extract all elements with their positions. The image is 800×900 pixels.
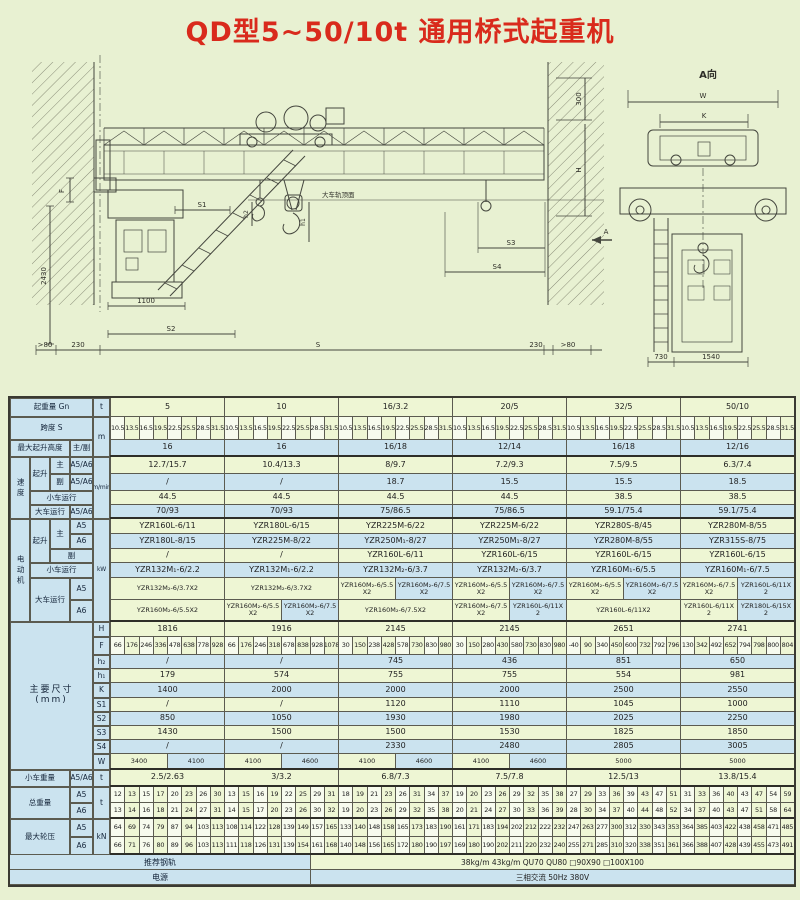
table-cell: 667176808996103113 bbox=[110, 837, 224, 853]
table-cell: 6.8/7.3 bbox=[338, 770, 452, 785]
table-subcell: 730 bbox=[409, 637, 423, 654]
table-cell: YZR160L-6/15 bbox=[452, 549, 566, 562]
table-subcell: 32 bbox=[324, 803, 338, 817]
table-subcell: 13 bbox=[111, 803, 124, 817]
table-subcell: 388 bbox=[694, 837, 708, 853]
table-subcell: 385 bbox=[694, 819, 708, 836]
table-cell: YZR180L-6/15 bbox=[224, 519, 338, 533]
table-subcell: 19 bbox=[352, 787, 366, 802]
table-subcell: 928 bbox=[210, 637, 224, 654]
table-subcell: 24 bbox=[481, 803, 495, 817]
table-subcell: 1078 bbox=[324, 637, 338, 654]
table-cell: 1213151720232630 bbox=[110, 787, 224, 802]
table-cell: 10.513.516.519.522.525.528.531.5 bbox=[680, 417, 794, 439]
table-cell: 1980 bbox=[452, 712, 566, 725]
table-subcell: 428 bbox=[723, 837, 737, 853]
table-cell: 255271285310320338351361 bbox=[566, 837, 680, 853]
table-cell: YZR160M₂-6/5.5X2YZR160M₂-6/7.5X2 bbox=[452, 578, 566, 599]
table-cell: 1916 bbox=[224, 622, 338, 636]
table-subcell: 29 bbox=[395, 803, 409, 817]
view-a-label: A向 bbox=[699, 68, 717, 81]
table-subcell: 165 bbox=[381, 837, 395, 853]
table-subcell: 22.5 bbox=[281, 417, 295, 439]
table-subcell: 19.5 bbox=[609, 417, 623, 439]
table-cell: 32/5 bbox=[566, 398, 680, 416]
table-subcell: YZR160M₂-6/5.5X2 bbox=[339, 578, 395, 599]
table-subcell: 190 bbox=[481, 837, 495, 853]
table-subcell: YZR180L-6/15X2 bbox=[737, 600, 794, 620]
table-subcell: 28.5 bbox=[424, 417, 438, 439]
table-subcell: 156 bbox=[367, 837, 381, 853]
table-cell: 1825 bbox=[566, 726, 680, 739]
table-subcell: 403 bbox=[709, 819, 723, 836]
table-subcell: 32 bbox=[409, 803, 423, 817]
table-subcell: 277 bbox=[595, 819, 609, 836]
table-subcell: 103 bbox=[196, 819, 210, 836]
table-cell: 1500 bbox=[224, 726, 338, 739]
table-subcell: 25.5 bbox=[523, 417, 537, 439]
table-subcell: 34 bbox=[681, 803, 694, 817]
table-cell: 75/86.5 bbox=[452, 505, 566, 517]
table-subcell: 222 bbox=[538, 819, 552, 836]
table-subcell: 39 bbox=[623, 787, 637, 802]
table-cell: 10.513.516.519.522.525.528.531.5 bbox=[452, 417, 566, 439]
table-cell: 15.5 bbox=[566, 474, 680, 490]
table-subcell: 190 bbox=[438, 819, 452, 836]
table-cell: 1415172023263032 bbox=[224, 803, 338, 817]
table-subcell: YZR160L-6/11X2 bbox=[681, 600, 737, 620]
table-subcell: 69 bbox=[124, 819, 138, 836]
table-subcell: 318 bbox=[267, 637, 281, 654]
table-subcell: 140 bbox=[352, 819, 366, 836]
table-header-cell: 小车运行 bbox=[30, 563, 93, 578]
dim-H: H bbox=[575, 167, 583, 172]
table-subcell: 35 bbox=[538, 787, 552, 802]
table-cell: 8/9.7 bbox=[338, 457, 452, 473]
table-cell: 34004100 bbox=[110, 754, 224, 768]
table-row-dim_S2: 85010501930198020252250 bbox=[10, 712, 794, 726]
table-cell: 1110 bbox=[452, 698, 566, 711]
table-header-cell: 起升 bbox=[30, 457, 50, 491]
table-cell: 755 bbox=[338, 669, 452, 682]
table-subcell: 59 bbox=[780, 787, 794, 802]
table-subcell: 12 bbox=[111, 787, 124, 802]
table-subcell: 246 bbox=[139, 637, 153, 654]
table-header-cell: 副 bbox=[50, 549, 93, 563]
table-row-motor_trolley: YZR132M₁-6/2.2YZR132M₁-6/2.2YZR132M₂-6/3… bbox=[10, 563, 794, 578]
table-cell: -4090340450600732792796 bbox=[566, 637, 680, 654]
table-subcell: 15 bbox=[139, 787, 153, 802]
table-subcell: 430 bbox=[495, 637, 509, 654]
table-subcell: YZR160M₂-6/5.5X2 bbox=[567, 578, 623, 599]
table-header-cell: A5/A6 bbox=[70, 505, 93, 519]
table-subcell: 40 bbox=[623, 803, 637, 817]
table-header-cell: 电源 bbox=[10, 870, 310, 884]
table-subcell: 361 bbox=[666, 837, 680, 853]
table-cell: 2550 bbox=[680, 683, 794, 697]
table-subcell: 111 bbox=[225, 837, 238, 853]
table-header-cell: A5 bbox=[70, 519, 93, 534]
table-header-cell: S4 bbox=[93, 740, 110, 754]
table-cell: 2025 bbox=[566, 712, 680, 725]
table-cell: 6.3/7.4 bbox=[680, 457, 794, 473]
table-cell: 3133364043475459 bbox=[680, 787, 794, 802]
table-header-cell: A6 bbox=[70, 803, 93, 819]
table-subcell: 19.5 bbox=[723, 417, 737, 439]
table-subcell: 310 bbox=[609, 837, 623, 853]
table-cell: / bbox=[110, 698, 224, 711]
table-cell: YZR280M-8/55 bbox=[680, 519, 794, 533]
table-subcell: 20 bbox=[453, 803, 466, 817]
table-cell: 5000 bbox=[566, 754, 680, 768]
table-subcell: YZR132M₂-6/3.7X2 bbox=[111, 578, 224, 599]
table-cell: 7.2/9.3 bbox=[452, 457, 566, 473]
dim-S4: S4 bbox=[493, 263, 502, 271]
table-subcell: YZR160M₂-6/7.5X2 bbox=[453, 600, 509, 620]
table-subcell: 43 bbox=[737, 787, 751, 802]
elevation-dimensions: F 2430 S1 1100 S2 >80 230 S 230 >80 300 … bbox=[38, 92, 609, 349]
table-cell: YZR225M-6/22 bbox=[338, 519, 452, 533]
table-subcell: 285 bbox=[595, 837, 609, 853]
table-subcell: 26 bbox=[395, 787, 409, 802]
dim-300: 300 bbox=[575, 92, 583, 105]
table-subcell: 980 bbox=[552, 637, 566, 654]
table-row-motor_aux: //YZR160L-6/11YZR160L-6/15YZR160L-6/15YZ… bbox=[10, 549, 794, 563]
table-subcell: YZR160M₂-6/7.5X2 bbox=[623, 578, 680, 599]
table-header-cell: 总重量 bbox=[10, 787, 70, 819]
table-subcell: 161 bbox=[310, 837, 324, 853]
dim-gt80-right: >80 bbox=[561, 341, 576, 349]
table-subcell: 180 bbox=[466, 837, 480, 853]
table-subcell: YZR160L-6/11X2 bbox=[737, 578, 794, 599]
table-subcell: 13 bbox=[124, 787, 138, 802]
table-cell: 3/3.2 bbox=[224, 770, 338, 785]
table-subcell: 271 bbox=[580, 837, 594, 853]
table-cell: 16/18 bbox=[566, 440, 680, 455]
table-subcell: 438 bbox=[737, 819, 751, 836]
table-subcell: 18 bbox=[339, 787, 352, 802]
table-subcell: 338 bbox=[637, 837, 651, 853]
table-cell: 41004600 bbox=[338, 754, 452, 768]
table-subcell: 30 bbox=[339, 637, 352, 654]
table-subcell: 3400 bbox=[111, 754, 167, 768]
table-subcell: 47 bbox=[751, 787, 765, 802]
table-subcell: 19 bbox=[453, 787, 466, 802]
table-cell: 111118126131139154161168 bbox=[224, 837, 338, 853]
table-cell: 1930 bbox=[338, 712, 452, 725]
table-subcell: 139 bbox=[281, 837, 295, 853]
table-subcell: 22.5 bbox=[623, 417, 637, 439]
table-subcell: 838 bbox=[295, 637, 309, 654]
table-subcell: 19.5 bbox=[267, 417, 281, 439]
table-subcell: 364 bbox=[681, 819, 694, 836]
table-cell: 2145 bbox=[452, 622, 566, 636]
table-subcell: 183 bbox=[424, 819, 438, 836]
table-cell: YZR160L-6/11X2YZR180L-6/15X2 bbox=[680, 600, 794, 620]
table-header-cell: 推荐钢轨 bbox=[10, 855, 310, 869]
table-subcell: 140 bbox=[339, 837, 352, 853]
table-cell: 2000 bbox=[338, 683, 452, 697]
table-cell: 41004600 bbox=[224, 754, 338, 768]
table-subcell: 638 bbox=[181, 637, 195, 654]
table-subcell: 34 bbox=[595, 803, 609, 817]
table-cell: YZR225M-8/22 bbox=[224, 534, 338, 548]
table-cell: 2250 bbox=[680, 712, 794, 725]
table-header-cell: 主要尺寸 (mm) bbox=[10, 622, 93, 770]
table-cell: 12/14 bbox=[452, 440, 566, 455]
table-header-cell: A5 bbox=[70, 787, 93, 803]
table-cell: 2651 bbox=[566, 622, 680, 636]
table-subcell: 190 bbox=[424, 837, 438, 853]
table-cell: / bbox=[224, 474, 338, 490]
table-subcell: 28.5 bbox=[196, 417, 210, 439]
table-row-speed_crane: 70/9370/9375/86.575/86.559.1/75.459.1/75… bbox=[10, 505, 794, 519]
table-subcell: 38 bbox=[438, 803, 452, 817]
table-subcell: 157 bbox=[310, 819, 324, 836]
table-header-cell: 电动机 bbox=[10, 519, 30, 622]
table-cell: YZR250M₁-8/27 bbox=[338, 534, 452, 548]
table-cell: YZR180L-8/15 bbox=[110, 534, 224, 548]
table-cell: 7.5/9.5 bbox=[566, 457, 680, 473]
table-subcell: 28.5 bbox=[766, 417, 780, 439]
table-subcell: 31.5 bbox=[780, 417, 794, 439]
table-cell: 12/16 bbox=[680, 440, 794, 455]
table-header-cell: 主 bbox=[50, 519, 70, 549]
table-cell: 1314161821242731 bbox=[110, 803, 224, 817]
table-header-cell: h₁ bbox=[93, 669, 110, 683]
table-row-dim_K: 140020002000200025002550 bbox=[10, 683, 794, 698]
table-subcell: 29 bbox=[310, 787, 324, 802]
table-subcell: 29 bbox=[580, 787, 594, 802]
table-cell: 75/86.5 bbox=[338, 505, 452, 517]
table-subcell: 478 bbox=[167, 637, 181, 654]
dim-2430: 2430 bbox=[40, 267, 48, 285]
table-subcell: 27 bbox=[495, 803, 509, 817]
table-row-speed_trolley: 44.544.544.544.538.538.5 bbox=[10, 491, 794, 505]
table-cell: 179 bbox=[110, 669, 224, 682]
table-cell: 2805 bbox=[566, 740, 680, 753]
table-cell: YZR132M₂-6/3.7 bbox=[338, 563, 452, 577]
table-header-cell: W bbox=[93, 754, 110, 770]
table-subcell: 197 bbox=[438, 837, 452, 853]
table-cell: 13.8/15.4 bbox=[680, 770, 794, 785]
table-subcell: 47 bbox=[737, 803, 751, 817]
table-subcell: 15 bbox=[238, 803, 252, 817]
table-subcell: 202 bbox=[495, 837, 509, 853]
table-cell: YZR280S-8/45 bbox=[566, 519, 680, 533]
table-subcell: 25 bbox=[295, 787, 309, 802]
table-subcell: 10.5 bbox=[681, 417, 694, 439]
table-subcell: 71 bbox=[124, 837, 138, 853]
table-subcell: YZR160M₂-6/5.5X2 bbox=[225, 600, 281, 620]
table-subcell: 13.5 bbox=[694, 417, 708, 439]
table-cell: 247263277300312330343353 bbox=[566, 819, 680, 836]
table-subcell: 165 bbox=[324, 819, 338, 836]
table-cell: 7.5/7.8 bbox=[452, 770, 566, 785]
table-subcell: 149 bbox=[295, 819, 309, 836]
table-cell: 16/3.2 bbox=[338, 398, 452, 416]
table-header-cell: A6 bbox=[70, 534, 93, 549]
table-cell: 436 bbox=[452, 655, 566, 668]
table-subcell: YZR160M₂-6/5.5X2 bbox=[453, 578, 509, 599]
table-subcell: 798 bbox=[751, 637, 765, 654]
table-cell: 16/18 bbox=[338, 440, 452, 455]
table-cell: 44.5 bbox=[110, 491, 224, 504]
table-row-total_a5: 1213151720232630131516192225293118192123… bbox=[10, 787, 794, 803]
table-subcell: 220 bbox=[523, 837, 537, 853]
dim-K: K bbox=[702, 112, 707, 120]
table-subcell: 4600 bbox=[395, 754, 452, 768]
table-cell: 2741 bbox=[680, 622, 794, 636]
table-subcell: 28 bbox=[567, 803, 580, 817]
table-subcell: 27 bbox=[567, 787, 580, 802]
table-subcell: 4100 bbox=[167, 754, 224, 768]
table-subcell: 51 bbox=[666, 787, 680, 802]
table-subcell: 37 bbox=[438, 787, 452, 802]
table-subcell: 330 bbox=[637, 819, 651, 836]
table-cell: 108114122128139149157165 bbox=[224, 819, 338, 836]
table-cell: 2.5/2.63 bbox=[110, 770, 224, 785]
table-subcell: 342 bbox=[694, 637, 708, 654]
table-subcell: 79 bbox=[153, 819, 167, 836]
table-header-cell: 起升 bbox=[30, 519, 50, 563]
table-header-cell: A6 bbox=[70, 600, 93, 622]
table-subcell: 458 bbox=[751, 819, 765, 836]
table-subcell: 89 bbox=[167, 837, 181, 853]
table-row-motor_main_a5: YZR160L-6/11YZR180L-6/15YZR225M-6/22YZR2… bbox=[10, 519, 794, 534]
table-subcell: 730 bbox=[523, 637, 537, 654]
table-subcell: 66 bbox=[111, 837, 124, 853]
table-cell: YZR132M₂-6/3.7X2 bbox=[110, 578, 224, 599]
table-row-speed_main: 12.7/15.710.4/13.38/9.77.2/9.37.5/9.56.3… bbox=[10, 457, 794, 474]
table-header-cell: S1 bbox=[93, 698, 110, 712]
table-subcell: YZR160M₂-6/7.5X2 bbox=[681, 578, 737, 599]
dim-h1: h1 bbox=[300, 218, 307, 226]
table-subcell: 212 bbox=[523, 819, 537, 836]
table-subcell: 13.5 bbox=[124, 417, 138, 439]
table-cell: 70/93 bbox=[110, 505, 224, 517]
table-cell: 50/10 bbox=[680, 398, 794, 416]
table-subcell: 30 bbox=[310, 803, 324, 817]
table-subcell: 830 bbox=[538, 637, 552, 654]
table-subcell: 37 bbox=[694, 803, 708, 817]
table-subcell: 13.5 bbox=[352, 417, 366, 439]
page-title: QD型5~50/10t 通用桥式起重机 bbox=[0, 0, 800, 46]
table-subcell: 43 bbox=[637, 787, 651, 802]
table-subcell: 10.5 bbox=[339, 417, 352, 439]
table-cell: 10.513.516.519.522.525.528.531.5 bbox=[338, 417, 452, 439]
table-cell: 1850 bbox=[680, 726, 794, 739]
table-subcell: 312 bbox=[623, 819, 637, 836]
table-subcell: 148 bbox=[352, 837, 366, 853]
table-row-dim_h2: //745436851650 bbox=[10, 655, 794, 669]
table-subcell: 20 bbox=[167, 787, 181, 802]
table-subcell: 13.5 bbox=[238, 417, 252, 439]
table-subcell: 31.5 bbox=[438, 417, 452, 439]
table-subcell: 778 bbox=[196, 637, 210, 654]
table-cell: 44.5 bbox=[224, 491, 338, 504]
table-subcell: YZR160M₂-6/7.5X2 bbox=[281, 600, 338, 620]
table-row-motor_crane_a6: YZR160M₂-6/5.5X2YZR160M₂-6/5.5X2YZR160M₂… bbox=[10, 600, 794, 622]
table-cell: 66176246336478638778928 bbox=[110, 637, 224, 654]
table-subcell: 578 bbox=[395, 637, 409, 654]
table-row-wheel_a6: 6671768089961031131111181261311391541611… bbox=[10, 837, 794, 855]
table-cell: 2480 bbox=[452, 740, 566, 753]
table-subcell: 25.5 bbox=[751, 417, 765, 439]
table-cell: 30150238428578730830980 bbox=[338, 637, 452, 654]
table-subcell: 28.5 bbox=[652, 417, 666, 439]
table-subcell: 130 bbox=[681, 637, 694, 654]
table-cell: 41004600 bbox=[452, 754, 566, 768]
table-subcell: 168 bbox=[324, 837, 338, 853]
table-header-cell: m bbox=[93, 417, 110, 457]
table-row-total_a6: 1314161821242731141517202326303219202326… bbox=[10, 803, 794, 819]
table-subcell: 171 bbox=[466, 819, 480, 836]
table-subcell: 13.5 bbox=[466, 417, 480, 439]
table-cell: 366388407428439455473491 bbox=[680, 837, 794, 853]
table-subcell: 439 bbox=[737, 837, 751, 853]
table-cell: YZR160M₂-6/7.5X2YZR160L-6/11X2 bbox=[680, 578, 794, 599]
table-cell: 661762463186788389281078 bbox=[224, 637, 338, 654]
table-subcell: 27 bbox=[196, 803, 210, 817]
table-cell: 1000 bbox=[680, 698, 794, 711]
table-cell: YZR132M₁-6/2.2 bbox=[110, 563, 224, 577]
table-cell: 12.5/13 bbox=[566, 770, 680, 785]
table-subcell: 23 bbox=[181, 787, 195, 802]
table-subcell: 24 bbox=[181, 803, 195, 817]
table-subcell: 22.5 bbox=[509, 417, 523, 439]
table-subcell: 19 bbox=[267, 787, 281, 802]
table-cell: 364385403422438458471485 bbox=[680, 819, 794, 836]
table-cell: YZR160L-6/15 bbox=[566, 549, 680, 562]
table-subcell: 131 bbox=[267, 837, 281, 853]
spec-table: 51016/3.220/532/550/1010.513.516.519.522… bbox=[8, 396, 796, 887]
table-cell: 18.7 bbox=[338, 474, 452, 490]
table-subcell: 33 bbox=[694, 787, 708, 802]
table-header-cell: 主 bbox=[50, 457, 70, 474]
table-header-cell: 大车运行 bbox=[30, 578, 70, 622]
table-subcell: 31 bbox=[324, 787, 338, 802]
table-subcell: 980 bbox=[438, 637, 452, 654]
table-header-cell: 副 bbox=[50, 474, 70, 491]
table-cell: YZR160M₂-6/7.5X2 bbox=[338, 600, 452, 620]
table-cell: YZR160L-6/11 bbox=[338, 549, 452, 562]
table-subcell: 23 bbox=[367, 803, 381, 817]
table-subcell: 87 bbox=[167, 819, 181, 836]
table-subcell: 22.5 bbox=[395, 417, 409, 439]
table-cell: YZR160L-6/15 bbox=[680, 549, 794, 562]
table-cell: / bbox=[110, 474, 224, 490]
table-cell: 1120 bbox=[338, 698, 452, 711]
table-subcell: 36 bbox=[538, 803, 552, 817]
table-subcell: 150 bbox=[466, 637, 480, 654]
table-subcell: YZR160L-6/11X2 bbox=[567, 600, 680, 620]
table-subcell: 31 bbox=[681, 787, 694, 802]
table-subcell: 36 bbox=[709, 787, 723, 802]
table-cell: 130342492652794798800804 bbox=[680, 637, 794, 654]
table-cell: YZR225M-6/22 bbox=[452, 519, 566, 533]
table-cell: YZR160L-6/11X2 bbox=[566, 600, 680, 620]
table-subcell: 4100 bbox=[225, 754, 281, 768]
table-cell: 574 bbox=[224, 669, 338, 682]
table-row-motor_main_a6: YZR180L-8/15YZR225M-8/22YZR250M₁-8/27YZR… bbox=[10, 534, 794, 549]
table-subcell: 25.5 bbox=[295, 417, 309, 439]
table-header-cell: m/min bbox=[93, 457, 110, 519]
table-row-dim_h1: 179574755755554981 bbox=[10, 669, 794, 683]
table-header-cell: S2 bbox=[93, 712, 110, 726]
table-subcell: 17 bbox=[153, 787, 167, 802]
table-subcell: 455 bbox=[751, 837, 765, 853]
